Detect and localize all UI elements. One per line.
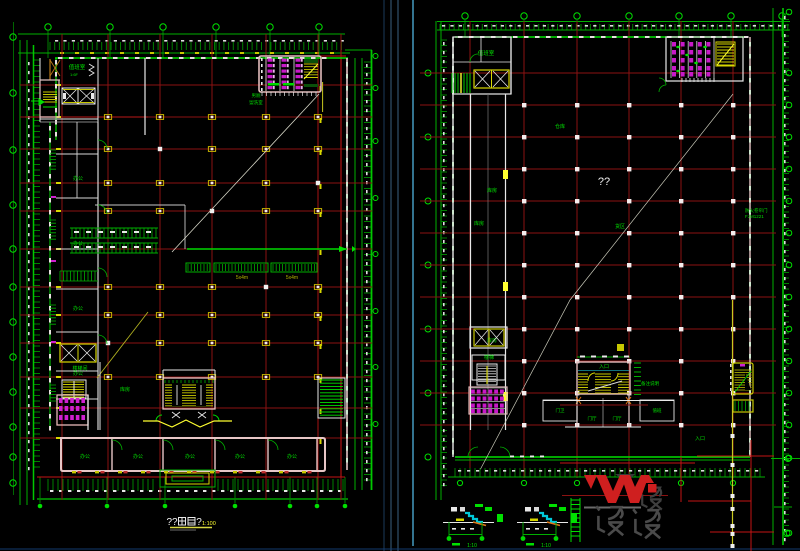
svg-text:1:10: 1:10 (467, 543, 477, 549)
svg-text:入口: 入口 (599, 364, 609, 370)
svg-text:办公: 办公 (133, 453, 143, 460)
svg-text:??: ?? (598, 176, 610, 188)
svg-text:值班: 值班 (653, 407, 662, 414)
svg-text:门厅: 门厅 (588, 415, 597, 422)
svg-text:库房: 库房 (474, 220, 484, 227)
svg-text:库房: 库房 (120, 386, 130, 393)
svg-text:备注说明: 备注说明 (641, 380, 659, 387)
svg-text:办公: 办公 (73, 305, 83, 312)
svg-text:防火卷帘门: 防火卷帘门 (745, 207, 768, 214)
svg-text:1:100: 1:100 (202, 521, 216, 527)
svg-text:5x4m: 5x4m (286, 275, 298, 281)
svg-text:入口: 入口 (695, 436, 705, 442)
svg-text:仓库: 仓库 (555, 123, 565, 130)
svg-text:值班室: 值班室 (69, 63, 86, 71)
svg-text:办公: 办公 (235, 453, 245, 460)
svg-text:1:6F: 1:6F (70, 72, 79, 77)
svg-text:办公: 办公 (80, 453, 90, 460)
svg-text:FJM1221: FJM1221 (745, 214, 764, 219)
svg-text:门厅: 门厅 (613, 415, 622, 422)
svg-text:办公: 办公 (185, 453, 195, 460)
svg-text:楼梯: 楼梯 (484, 354, 494, 361)
svg-text:盥洗室: 盥洗室 (249, 99, 263, 106)
svg-text:5x4m: 5x4m (236, 275, 248, 281)
svg-text:楼梯间: 楼梯间 (72, 365, 87, 372)
svg-text:??: ?? (166, 517, 178, 528)
svg-text:办公: 办公 (73, 175, 83, 182)
svg-text:货区: 货区 (615, 223, 625, 230)
svg-text:办公: 办公 (287, 453, 297, 460)
svg-text:库房: 库房 (487, 187, 497, 194)
svg-text:门卫: 门卫 (556, 407, 565, 414)
svg-text:值班室: 值班室 (478, 49, 495, 57)
svg-text:1:10: 1:10 (541, 543, 551, 549)
